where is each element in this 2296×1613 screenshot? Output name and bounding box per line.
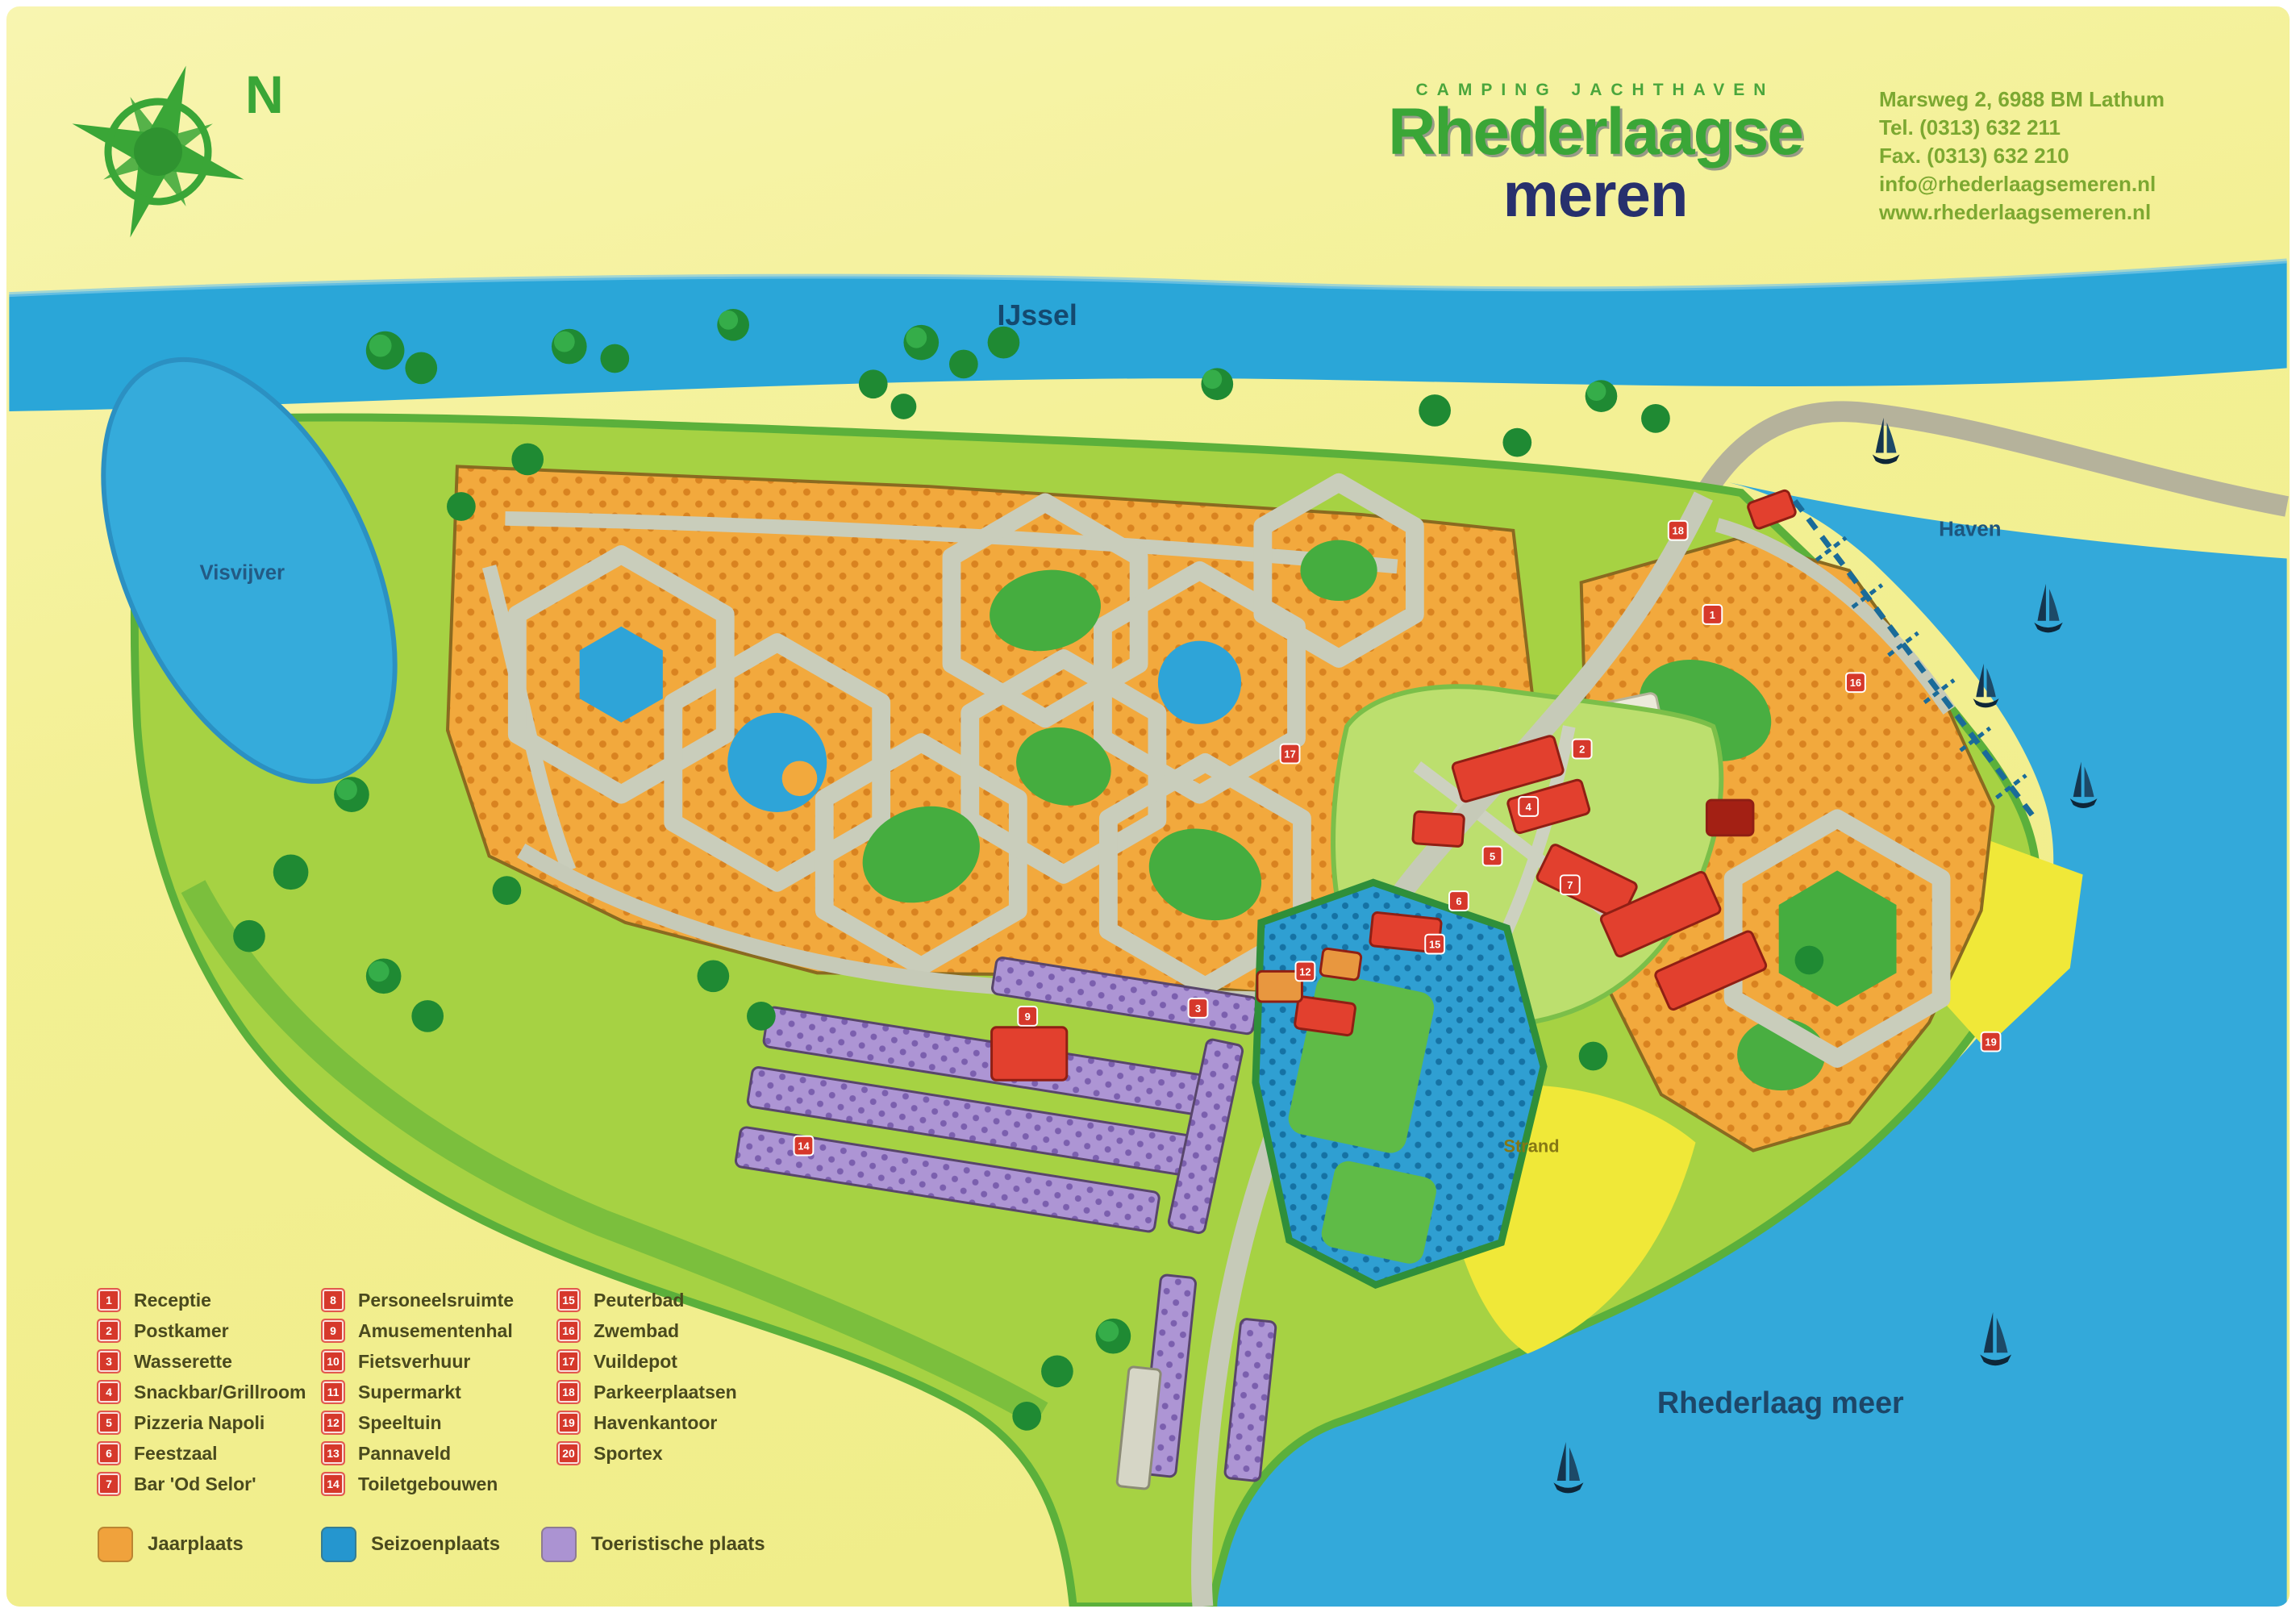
svg-text:19: 19 [1985, 1036, 1996, 1048]
legend-column-3: 15Peuterbad 16Zwembad 17Vuildepot 18Park… [556, 1285, 737, 1469]
legend-item-label: Wasserette [134, 1351, 232, 1373]
legend-number-badge: 7 [97, 1472, 121, 1496]
legend-item: 18Parkeerplaatsen [556, 1377, 737, 1407]
legend-item-label: Parkeerplaatsen [594, 1382, 737, 1403]
legend-item: 1Receptie [97, 1285, 306, 1315]
legend-item-label: Speeltuin [358, 1412, 442, 1434]
legend-item: 4Snackbar/Grillroom [97, 1377, 306, 1407]
toeristische-plaats-swatch [541, 1527, 577, 1562]
legend-item: 9Amusementenhal [321, 1315, 514, 1346]
legend-item: 6Feestzaal [97, 1438, 306, 1469]
compass-rose: N [45, 39, 319, 265]
legend-item-label: Toiletgebouwen [358, 1473, 498, 1495]
legend-number-badge: 4 [97, 1380, 121, 1404]
legend-item: 17Vuildepot [556, 1346, 737, 1377]
access-road [1703, 411, 2286, 506]
legend-number-badge: 9 [321, 1319, 345, 1343]
legend-item-label: Vuildepot [594, 1351, 677, 1373]
legend-number-badge: 10 [321, 1349, 345, 1373]
area-type-label: Toeristische plaats [591, 1533, 765, 1556]
brand-block: CAMPING JACHTHAVEN Rhederlaagse meren [1369, 81, 1821, 224]
legend-number-badge: 15 [556, 1288, 581, 1312]
area-type-seizoenplaats: Seizoenplaats [321, 1527, 500, 1562]
legend-number-badge: 13 [321, 1441, 345, 1465]
legend-item-label: Bar 'Od Selor' [134, 1473, 256, 1495]
svg-text:17: 17 [1284, 748, 1295, 760]
legend-number-badge: 12 [321, 1411, 345, 1435]
legend-number-badge: 3 [97, 1349, 121, 1373]
contact-tel: Tel. (0313) 632 211 [1879, 114, 2266, 142]
legend-item: 13Pannaveld [321, 1438, 514, 1469]
legend-item: 3Wasserette [97, 1346, 306, 1377]
svg-text:5: 5 [1490, 850, 1495, 862]
legend-item-label: Amusementenhal [358, 1320, 513, 1342]
legend-item: 14Toiletgebouwen [321, 1469, 514, 1499]
legend-item-label: Supermarkt [358, 1382, 461, 1403]
svg-text:15: 15 [1429, 939, 1440, 951]
lake-label: Rhederlaag meer [1657, 1386, 1904, 1419]
seizoenplaats-swatch [321, 1527, 356, 1562]
legend-item-label: Postkamer [134, 1320, 229, 1342]
river-label: IJssel [998, 299, 1077, 331]
legend-item: 19Havenkantoor [556, 1407, 737, 1438]
legend-number-badge: 19 [556, 1411, 581, 1435]
legend-item-label: Pizzeria Napoli [134, 1412, 265, 1434]
area-type-jaarplaats: Jaarplaats [98, 1527, 244, 1562]
legend-item: 5Pizzeria Napoli [97, 1407, 306, 1438]
pond-label: Visvijver [199, 561, 285, 584]
contact-email: info@rhederlaagsemeren.nl [1879, 170, 2266, 198]
svg-text:9: 9 [1025, 1011, 1031, 1023]
brand-title-line1: Rhederlaagse [1369, 100, 1821, 165]
legend-number-badge: 16 [556, 1319, 581, 1343]
contact-website: www.rhederlaagsemeren.nl [1879, 198, 2266, 227]
area-type-toeristische-plaats: Toeristische plaats [541, 1527, 765, 1562]
legend-number-badge: 1 [97, 1288, 121, 1312]
legend-number-badge: 20 [556, 1441, 581, 1465]
legend-item: 10Fietsverhuur [321, 1346, 514, 1377]
svg-text:2: 2 [1579, 744, 1585, 756]
legend-item: 7Bar 'Od Selor' [97, 1469, 306, 1499]
legend-item-label: Snackbar/Grillroom [134, 1382, 306, 1403]
svg-text:6: 6 [1456, 895, 1461, 907]
svg-text:14: 14 [798, 1140, 810, 1152]
legend-item: 12Speeltuin [321, 1407, 514, 1438]
area-type-label: Jaarplaats [148, 1533, 244, 1556]
legend-item: 20Sportex [556, 1438, 737, 1469]
legend-item-label: Havenkantoor [594, 1412, 717, 1434]
legend-number-badge: 17 [556, 1349, 581, 1373]
legend-item-label: Personeelsruimte [358, 1290, 514, 1311]
svg-text:3: 3 [1195, 1002, 1201, 1015]
svg-text:4: 4 [1526, 801, 1532, 813]
legend-column-1: 1Receptie 2Postkamer 3Wasserette 4Snackb… [97, 1285, 306, 1499]
contact-block: Marsweg 2, 6988 BM Lathum Tel. (0313) 63… [1879, 85, 2266, 227]
legend-item-label: Feestzaal [134, 1443, 218, 1465]
harbor-label: Haven [1939, 519, 2001, 541]
camping-map-page: IJssel Visvijver Haven Strand Rhederlaag… [6, 6, 2290, 1607]
svg-text:7: 7 [1567, 879, 1573, 891]
legend-number-badge: 5 [97, 1411, 121, 1435]
legend-item: 2Postkamer [97, 1315, 306, 1346]
legend-item-label: Pannaveld [358, 1443, 451, 1465]
compass-north-label: N [245, 65, 284, 124]
legend-column-2: 8Personeelsruimte 9Amusementenhal 10Fiet… [321, 1285, 514, 1499]
contact-fax: Fax. (0313) 632 210 [1879, 142, 2266, 170]
legend-item: 15Peuterbad [556, 1285, 737, 1315]
legend-number-badge: 8 [321, 1288, 345, 1312]
svg-text:18: 18 [1673, 525, 1684, 537]
contact-address: Marsweg 2, 6988 BM Lathum [1879, 85, 2266, 114]
legend-item: 8Personeelsruimte [321, 1285, 514, 1315]
legend-item: 11Supermarkt [321, 1377, 514, 1407]
legend-number-badge: 18 [556, 1380, 581, 1404]
legend-item-label: Fietsverhuur [358, 1351, 470, 1373]
legend-item-label: Peuterbad [594, 1290, 684, 1311]
beach-label: Strand [1503, 1136, 1559, 1157]
legend-item-label: Sportex [594, 1443, 663, 1465]
svg-text:16: 16 [1850, 677, 1861, 689]
jaarplaats-swatch [98, 1527, 133, 1562]
legend-number-badge: 2 [97, 1319, 121, 1343]
brand-title-line2: meren [1369, 165, 1821, 224]
svg-text:1: 1 [1710, 609, 1715, 621]
legend-item: 16Zwembad [556, 1315, 737, 1346]
ijssel-river [9, 260, 2286, 411]
legend-item-label: Zwembad [594, 1320, 679, 1342]
legend-number-badge: 6 [97, 1441, 121, 1465]
legend-item-label: Receptie [134, 1290, 211, 1311]
legend-number-badge: 11 [321, 1380, 345, 1404]
area-type-label: Seizoenplaats [371, 1533, 500, 1556]
legend-number-badge: 14 [321, 1472, 345, 1496]
svg-text:12: 12 [1299, 965, 1311, 977]
